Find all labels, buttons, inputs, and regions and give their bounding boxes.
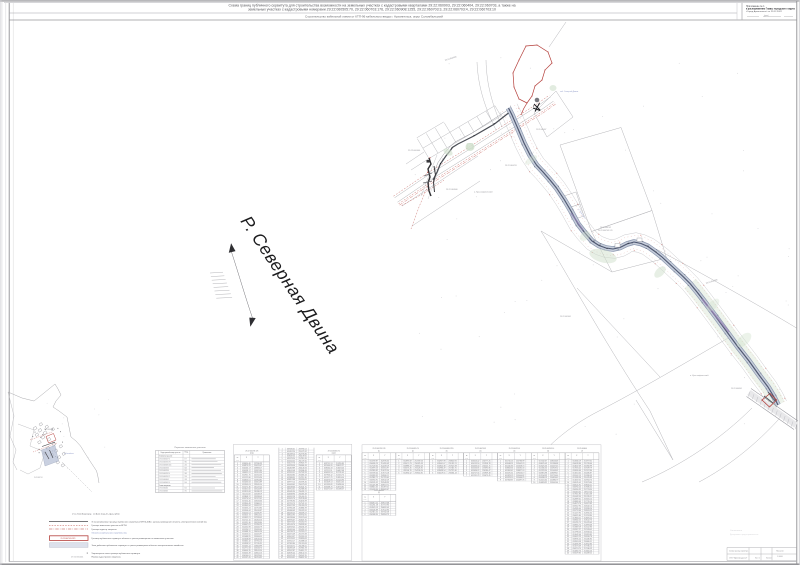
svg-text:29:22:060703:ЧЗУ1: 29:22:060703:ЧЗУ1 <box>61 538 76 540</box>
svg-text:Примечание: Примечание <box>203 452 212 454</box>
svg-text:Y: Y <box>554 455 555 457</box>
svg-text:X: X <box>328 457 329 459</box>
svg-text:253073.45: 253073.45 <box>482 475 490 477</box>
svg-text:47: 47 <box>281 557 283 559</box>
svg-text:318: 318 <box>185 479 188 481</box>
svg-text:Схема границ сервитута: Схема границ сервитута <box>729 550 748 552</box>
svg-text:Граница публичного сервитута о: Граница публичного сервитута объекта с ц… <box>92 538 175 540</box>
svg-text:Перечень земельных участков: Перечень земельных участков <box>174 447 206 449</box>
svg-text:651231.78: 651231.78 <box>471 475 479 477</box>
svg-text:точки: точки <box>533 457 536 459</box>
svg-text:200: 200 <box>185 464 188 466</box>
svg-text:п. Краснофлотский: п. Краснофлотский <box>690 374 709 377</box>
svg-text:29:22:060703:3: 29:22:060703:3 <box>159 467 169 469</box>
svg-text:Листов 1: Листов 1 <box>766 557 772 559</box>
svg-text:29:22:061601: 29:22:061601 <box>560 316 571 318</box>
svg-text:точки: точки <box>465 457 468 459</box>
svg-text:40: 40 <box>567 553 569 555</box>
svg-text:Граница кадастр. квартала: Граница кадастр. квартала <box>92 529 118 531</box>
svg-text:652137.45: 652137.45 <box>242 557 250 559</box>
svg-text:о. Краснофлотский: о. Краснофлотский <box>474 191 493 194</box>
svg-text:(чзу1): (чзу1) <box>250 453 255 455</box>
svg-text:7: 7 <box>466 475 467 477</box>
svg-text:6: 6 <box>398 472 399 474</box>
svg-text:253441.44: 253441.44 <box>550 482 558 484</box>
svg-text:X: X <box>542 455 543 457</box>
svg-text:29:22:060903: 29:22:060903 <box>159 491 168 493</box>
svg-text:659229.85: 659229.85 <box>573 553 581 555</box>
svg-text:29:22:060505:70: 29:22:060505:70 <box>407 448 419 450</box>
svg-text:Y: Y <box>384 497 385 499</box>
svg-text:Y: Y <box>486 455 487 457</box>
svg-text:982: 982 <box>185 461 188 463</box>
svg-text:X: X <box>407 455 408 457</box>
svg-text:29:22:060903: 29:22:060903 <box>374 490 384 492</box>
svg-text:земельных участках с кадастров: земельных участках с кадастровыми номера… <box>248 8 496 12</box>
svg-text:1:5000: 1:5000 <box>777 556 783 558</box>
svg-text:969: 969 <box>185 473 188 475</box>
svg-text:653: 653 <box>185 467 188 469</box>
svg-text:X: X <box>373 455 374 457</box>
svg-text:29:22:060703:3: 29:22:060703:3 <box>475 448 486 450</box>
svg-text:29:22:060908:1255: 29:22:060908:1255 <box>440 448 454 450</box>
svg-text:29:22:060908:1255: 29:22:060908:1255 <box>159 464 171 466</box>
svg-text:Y: Y <box>339 457 340 459</box>
svg-text:Масштаб: Масштаб <box>776 550 783 552</box>
svg-text:Y: Y <box>384 455 385 457</box>
svg-text:Строительство кабельной линии: Строительство кабельной линии от КТП-96 … <box>305 14 443 18</box>
svg-text:29:22:060903:14: 29:22:060903:14 <box>159 482 170 484</box>
svg-text:Y: Y <box>452 455 453 457</box>
svg-text:29:22:060703:10: 29:22:060703:10 <box>542 448 554 450</box>
svg-text:(дата): (дата) <box>764 15 769 17</box>
svg-text:29:22:060703:176: 29:22:060703:176 <box>159 461 170 463</box>
svg-text:Устанавливаемая граница публич: Устанавливаемая граница публичного серви… <box>92 520 208 523</box>
svg-text:29:22:060404: 29:22:060404 <box>159 488 168 490</box>
svg-text:9: 9 <box>500 480 501 482</box>
svg-text:258994.79: 258994.79 <box>381 514 389 516</box>
svg-text:Приложение № 1: Приложение № 1 <box>746 5 765 8</box>
svg-text:X: X <box>246 457 247 459</box>
svg-text:516: 516 <box>185 476 188 478</box>
svg-text:29:22:060404:5: 29:22:060404:5 <box>159 479 169 481</box>
svg-text:656188.90: 656188.90 <box>370 514 378 516</box>
svg-text:6: 6 <box>365 514 366 516</box>
svg-text:657624.31: 657624.31 <box>287 557 295 559</box>
svg-text:Зона действия публичного серви: Зона действия публичного сервитута с цел… <box>92 544 185 547</box>
svg-text:Департамент градостроительства: Департамент градостроительства <box>730 534 758 536</box>
svg-text:29:22:060404: 29:22:060404 <box>71 556 84 558</box>
svg-text:160: 160 <box>185 482 188 484</box>
svg-text:29:22:060702: 29:22:060702 <box>600 227 611 229</box>
svg-text:259004.81: 259004.81 <box>415 472 423 474</box>
svg-text:точки: точки <box>236 460 239 462</box>
svg-text:29:22:060703:12: 29:22:060703:12 <box>159 476 170 478</box>
svg-text:точки: точки <box>398 457 401 459</box>
svg-text:656419.55: 656419.55 <box>437 472 445 474</box>
svg-text:точки: точки <box>364 457 367 459</box>
svg-text:29:22:060404: 29:22:060404 <box>408 150 421 152</box>
svg-text:точки: точки <box>318 460 321 462</box>
svg-text:41: 41 <box>236 557 238 559</box>
svg-text:Номер кадастрового квартала: Номер кадастрового квартала <box>92 556 122 558</box>
svg-text:Согласовано: Согласовано <box>730 530 743 532</box>
svg-text:точки: точки <box>567 457 570 459</box>
svg-text:р. Соломбалка: р. Соломбалка <box>64 453 74 455</box>
svg-text:254697.76: 254697.76 <box>516 480 524 482</box>
svg-text:29:22:060906: 29:22:060906 <box>446 189 458 191</box>
svg-text:654571.69: 654571.69 <box>324 489 332 491</box>
svg-text:29:22:060703:4: 29:22:060703:4 <box>159 470 169 472</box>
svg-text:258434.44: 258434.44 <box>448 472 456 474</box>
svg-text:X: X <box>509 455 510 457</box>
svg-text:Y: Y <box>520 455 521 457</box>
svg-text:654683.92: 654683.92 <box>539 482 547 484</box>
svg-text:Земли кварталов:: Земли кварталов: <box>159 485 171 487</box>
svg-text:29:22:060703: 29:22:060703 <box>505 165 517 167</box>
svg-text:258657.26: 258657.26 <box>298 557 306 559</box>
svg-text:29:22:060703:176: 29:22:060703:176 <box>245 450 258 452</box>
svg-text:10: 10 <box>533 482 535 484</box>
svg-text:654954.62: 654954.62 <box>403 472 411 474</box>
svg-text:Характерная точка границы публ: Характерная точка границы публичного сер… <box>92 553 142 555</box>
svg-text:Y: Y <box>587 455 588 457</box>
svg-text:X: X <box>441 455 442 457</box>
svg-text:Граница земельного участка по: Граница земельного участка по ЕГРН <box>92 525 128 527</box>
svg-text:УСЛОВНЫЕ ОБОЗНАЧЕНИЯ: УСЛОВНЫЕ ОБОЗНАЧЕНИЯ <box>72 512 120 516</box>
svg-text:371: 371 <box>185 491 188 493</box>
svg-text:точки: точки <box>431 457 434 459</box>
svg-text:195: 195 <box>185 470 188 472</box>
svg-text:13: 13 <box>364 489 366 491</box>
svg-text:29:22:061701: 29:22:061701 <box>34 477 43 479</box>
svg-text:Лист 1: Лист 1 <box>755 557 760 559</box>
svg-text:точки: точки <box>364 499 367 501</box>
svg-text:29:22:060407: 29:22:060407 <box>536 129 546 131</box>
svg-text:29:22:060703:176: 29:22:060703:176 <box>598 230 613 232</box>
svg-text:ООО «Архземкадастр»: ООО «Архземкадастр» <box>729 556 747 559</box>
svg-text:29:22:060703:176: 29:22:060703:176 <box>372 448 385 450</box>
svg-text:Площ.: Площ. <box>184 452 189 454</box>
svg-text:12: 12 <box>318 489 320 491</box>
svg-text:Объекты капитального строитель: Объекты капитального строительства <box>92 533 128 535</box>
svg-text:657818.87: 657818.87 <box>505 480 513 482</box>
svg-text:256439.22: 256439.22 <box>584 553 592 555</box>
svg-text:29:22:060505:70: 29:22:060505:70 <box>328 450 340 452</box>
svg-text:X: X <box>373 497 374 499</box>
svg-text:29:22:060505:70: 29:22:060505:70 <box>159 459 170 461</box>
svg-text:29:22:060404: 29:22:060404 <box>44 429 53 431</box>
svg-text:256753.92: 256753.92 <box>254 557 262 559</box>
svg-text:102: 102 <box>185 488 188 490</box>
svg-text:точки: точки <box>499 457 502 459</box>
svg-text:29:22:060703:10: 29:22:060703:10 <box>159 473 170 475</box>
svg-text:Y: Y <box>257 457 258 459</box>
svg-text:X: X <box>576 455 577 457</box>
svg-text:177: 177 <box>185 459 188 461</box>
svg-text:(чзу2): (чзу2) <box>332 453 337 455</box>
svg-text:X: X <box>475 455 476 457</box>
svg-text:6: 6 <box>432 472 433 474</box>
svg-text:Y: Y <box>418 455 419 457</box>
svg-text:наб. Северной Двины: наб. Северной Двины <box>560 90 579 93</box>
svg-text:255198.57: 255198.57 <box>336 489 344 491</box>
svg-text:29:22:060703:4: 29:22:060703:4 <box>509 448 520 450</box>
svg-text:«Город Архангельск» от 29.12.2: «Город Архангельск» от 29.12.2022 <box>746 10 783 13</box>
svg-text:29:22:060901: 29:22:060901 <box>731 388 742 390</box>
svg-text:Земельные участки:: Земельные участки: <box>159 456 173 458</box>
svg-text:29:22:060404: 29:22:060404 <box>577 448 587 450</box>
